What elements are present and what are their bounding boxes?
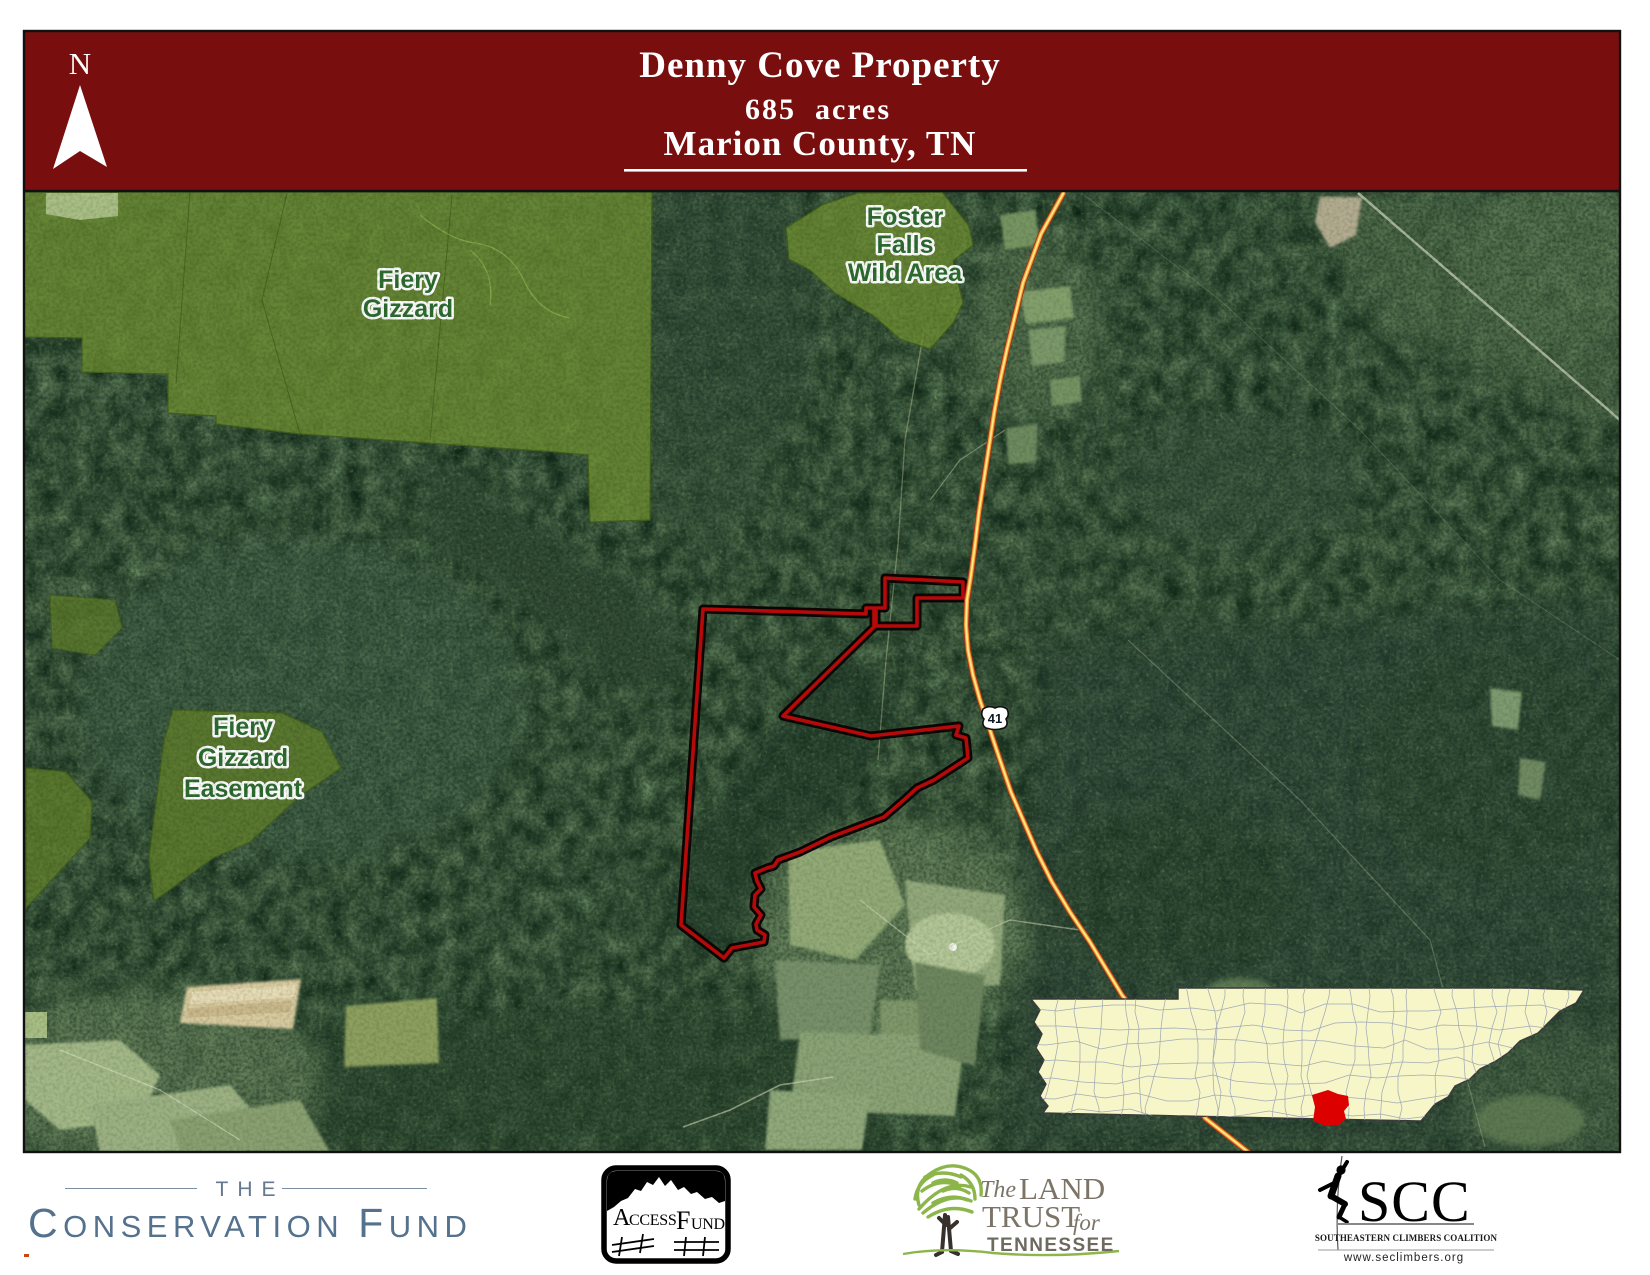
svg-text:Denny Cove Property: Denny Cove Property: [639, 45, 1001, 86]
svg-text:for: for: [1073, 1210, 1101, 1235]
svg-text:www.seclimbers.org: www.seclimbers.org: [1343, 1252, 1464, 1264]
svg-text:F: F: [676, 1206, 690, 1235]
svg-text:N: N: [69, 46, 91, 81]
svg-text:SOUTHEASTERN CLIMBERS COALITIO: SOUTHEASTERN CLIMBERS COALITION: [1315, 1233, 1498, 1243]
svg-text:UND: UND: [691, 1216, 725, 1233]
svg-text:CCESS: CCESS: [629, 1212, 676, 1229]
svg-text:TRUST: TRUST: [982, 1199, 1080, 1234]
svg-text:Marion County, TN: Marion County, TN: [664, 124, 977, 163]
svg-text:685 acres: 685 acres: [745, 93, 891, 126]
svg-text:41: 41: [988, 711, 1002, 726]
svg-text:TENNESSEE: TENNESSEE: [987, 1235, 1115, 1256]
